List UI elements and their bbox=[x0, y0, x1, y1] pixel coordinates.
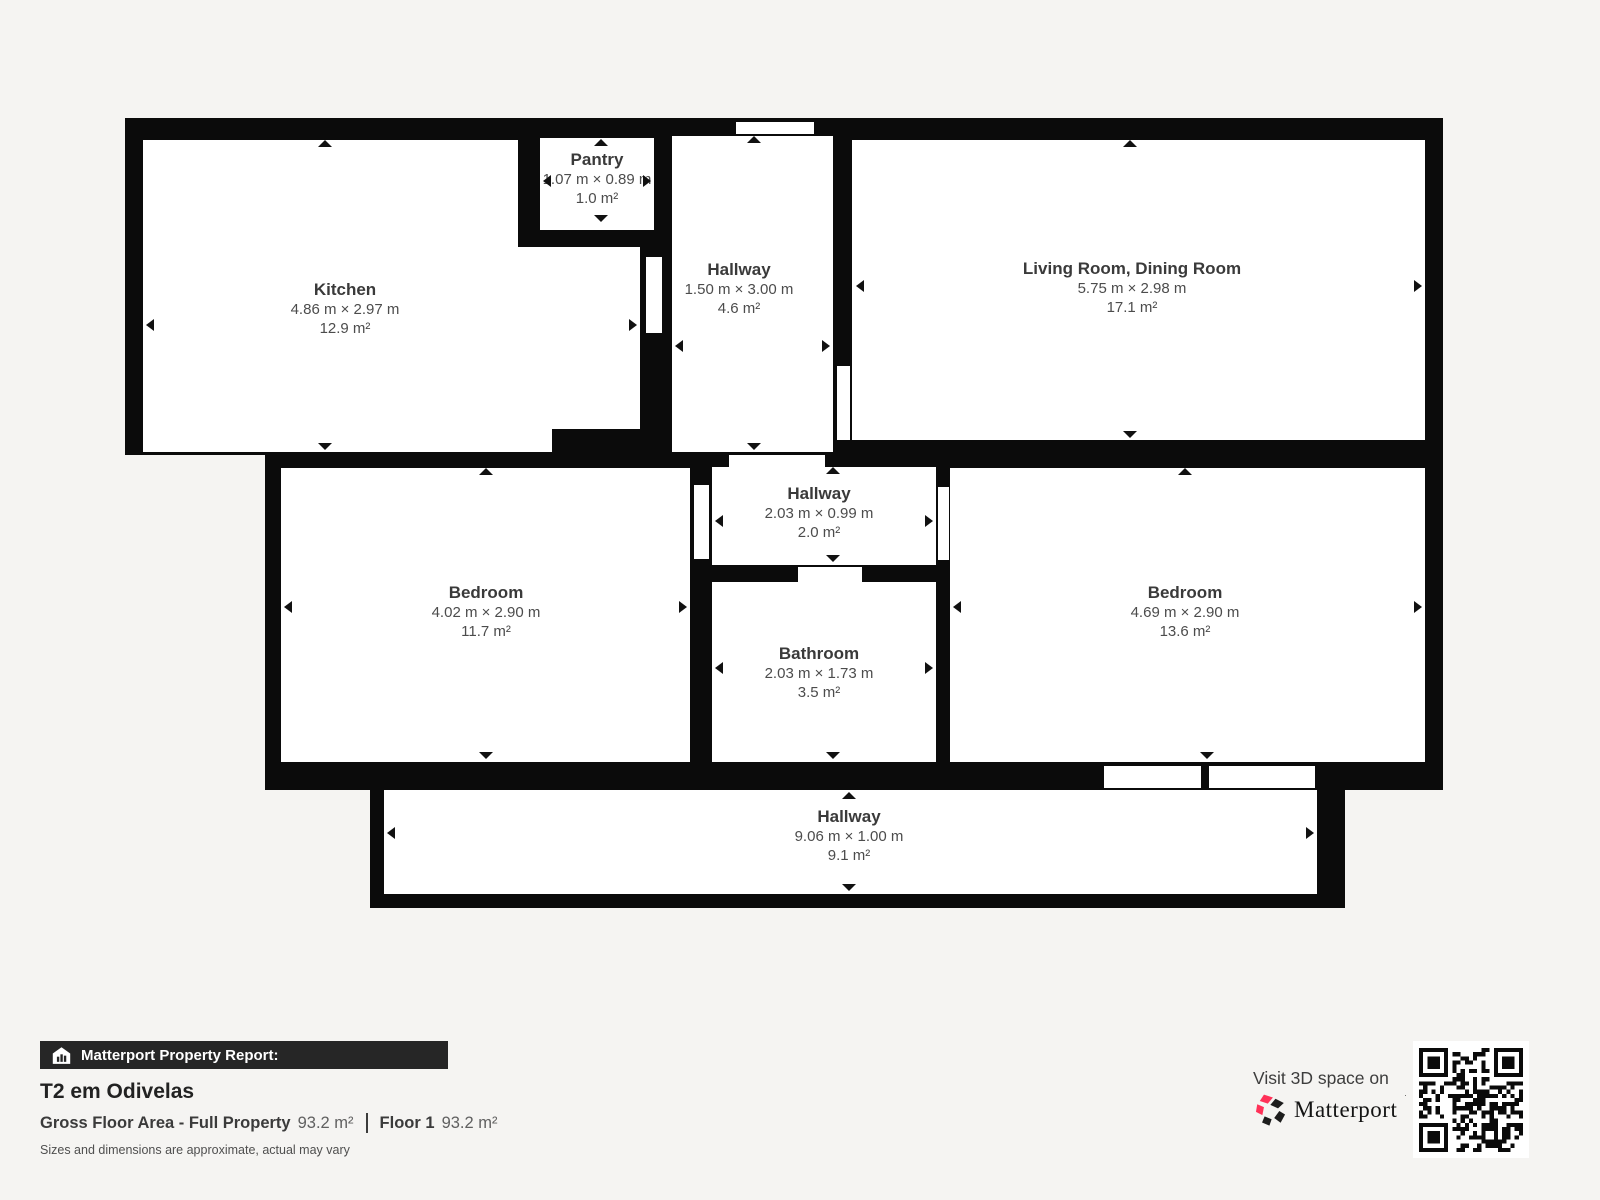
dimension-arrow-right bbox=[925, 662, 933, 674]
house-chart-icon bbox=[52, 1046, 71, 1065]
door-bedroom-hallway-bottom-1 bbox=[1104, 766, 1201, 788]
dimension-arrow-up bbox=[747, 136, 761, 143]
dimension-arrow-right bbox=[822, 340, 830, 352]
dimension-arrow-up bbox=[842, 792, 856, 799]
floor-area-value: 93.2 m² bbox=[442, 1114, 498, 1133]
matterport-brand: Matterport ˙ bbox=[1255, 1094, 1407, 1126]
dimension-arrow-down bbox=[747, 443, 761, 450]
dimension-arrow-left bbox=[715, 662, 723, 674]
dimension-arrow-right bbox=[629, 319, 637, 331]
dimension-arrow-left bbox=[953, 601, 961, 613]
dimension-arrow-left bbox=[146, 319, 154, 331]
room-floor-hallway-bottom bbox=[384, 790, 1317, 894]
dimension-arrow-right bbox=[1414, 601, 1422, 613]
door-hallway-living bbox=[837, 366, 850, 440]
visit-3d-space-text: Visit 3D space on bbox=[1253, 1068, 1393, 1089]
matterport-logo-icon bbox=[1255, 1094, 1287, 1126]
dimension-arrow-left bbox=[715, 515, 723, 527]
door-hallway-top-entry bbox=[736, 122, 814, 134]
property-title: T2 em Odivelas bbox=[40, 1080, 194, 1104]
dimension-arrow-up bbox=[1123, 140, 1137, 147]
disclaimer-text: Sizes and dimensions are approximate, ac… bbox=[40, 1143, 350, 1157]
dimension-arrow-up bbox=[479, 468, 493, 475]
dimension-arrow-up bbox=[594, 139, 608, 146]
matterport-floor-plan-report: Pantry1.07 m × 0.89 m1.0 m²Kitchen4.86 m… bbox=[0, 0, 1600, 1200]
report-bar-label: Matterport Property Report: bbox=[81, 1047, 279, 1064]
dimension-arrow-down bbox=[1200, 752, 1214, 759]
dimension-arrow-up bbox=[318, 140, 332, 147]
door-hallway-bedroom-left bbox=[694, 485, 709, 559]
floor-label: Floor 1 bbox=[380, 1114, 435, 1133]
dimension-arrow-left bbox=[856, 280, 864, 292]
dimension-arrow-left bbox=[675, 340, 683, 352]
room-floor-living-dining bbox=[852, 140, 1425, 440]
room-floor-hallway-top bbox=[672, 136, 833, 452]
dimension-arrow-down bbox=[479, 752, 493, 759]
door-hallway-bedroom-right bbox=[938, 487, 949, 560]
dimension-arrow-up bbox=[826, 467, 840, 474]
door-hallway-bathroom bbox=[798, 567, 862, 582]
door-bedroom-hallway-bottom-2 bbox=[1209, 766, 1315, 788]
trademark-mark: ˙ bbox=[1404, 1094, 1407, 1104]
dimension-arrow-down bbox=[1123, 431, 1137, 438]
dimension-arrow-right bbox=[679, 601, 687, 613]
room-floor-bathroom bbox=[712, 582, 936, 762]
dimension-arrow-right bbox=[925, 515, 933, 527]
dimension-arrow-down bbox=[594, 215, 608, 222]
dimension-arrow-right bbox=[1306, 827, 1314, 839]
dimension-arrow-left bbox=[284, 601, 292, 613]
dimension-arrow-right bbox=[643, 175, 651, 187]
matterport-wordmark: Matterport bbox=[1294, 1097, 1397, 1123]
dimension-arrow-down bbox=[826, 752, 840, 759]
room-floor-hallway-middle bbox=[712, 467, 936, 565]
dimension-arrow-right bbox=[1414, 280, 1422, 292]
gross-area-value: 93.2 m² bbox=[298, 1114, 354, 1133]
report-header-bar: Matterport Property Report: bbox=[40, 1041, 448, 1069]
dimension-arrow-left bbox=[543, 175, 551, 187]
dimension-arrow-down bbox=[826, 555, 840, 562]
dimension-arrow-left bbox=[387, 827, 395, 839]
stats-divider bbox=[366, 1113, 368, 1133]
door-kitchen-hallway bbox=[646, 257, 662, 333]
wall-kitchen-step bbox=[552, 429, 676, 452]
dimension-arrow-up bbox=[1178, 468, 1192, 475]
room-floor-bedroom-right bbox=[950, 468, 1425, 762]
gross-area-label: Gross Floor Area - Full Property bbox=[40, 1114, 291, 1133]
door-hallways-junction bbox=[729, 455, 825, 470]
room-floor-bedroom-left bbox=[281, 468, 690, 762]
qr-code bbox=[1413, 1041, 1529, 1158]
dimension-arrow-down bbox=[842, 884, 856, 891]
area-stats: Gross Floor Area - Full Property 93.2 m²… bbox=[40, 1113, 498, 1133]
dimension-arrow-down bbox=[318, 443, 332, 450]
